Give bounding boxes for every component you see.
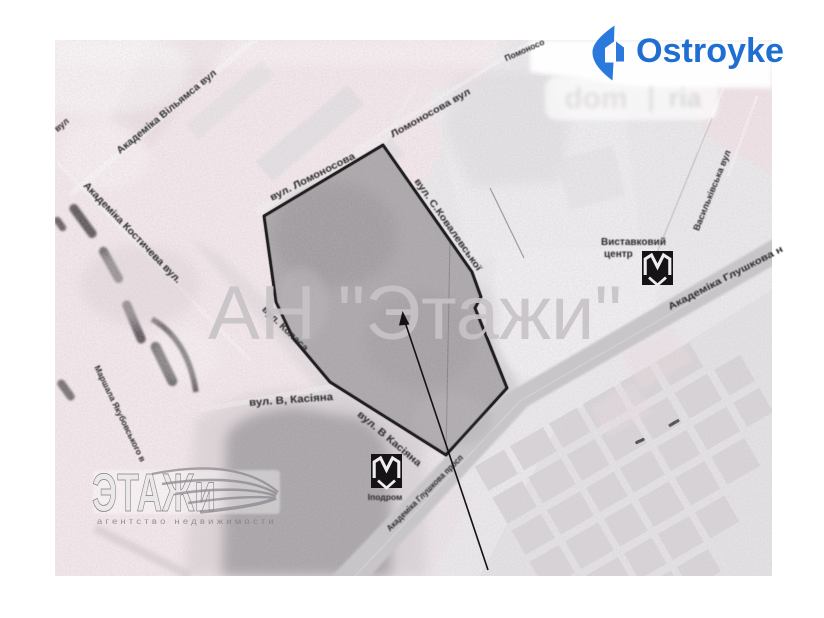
- svg-text:dom: dom: [564, 82, 627, 115]
- svg-text:ria: ria: [668, 83, 702, 113]
- svg-text:центр: центр: [604, 249, 633, 260]
- svg-text:АН "Этажи": АН "Этажи": [208, 271, 622, 356]
- svg-text:Виставковий: Виставковий: [601, 237, 666, 248]
- svg-text:агентство недвижимости: агентство недвижимости: [97, 516, 277, 526]
- svg-text:Іподром: Іподром: [368, 492, 403, 502]
- svg-text:Ostroyke: Ostroyke: [636, 32, 784, 70]
- svg-text:ЭТАЖи: ЭТАЖи: [92, 463, 216, 523]
